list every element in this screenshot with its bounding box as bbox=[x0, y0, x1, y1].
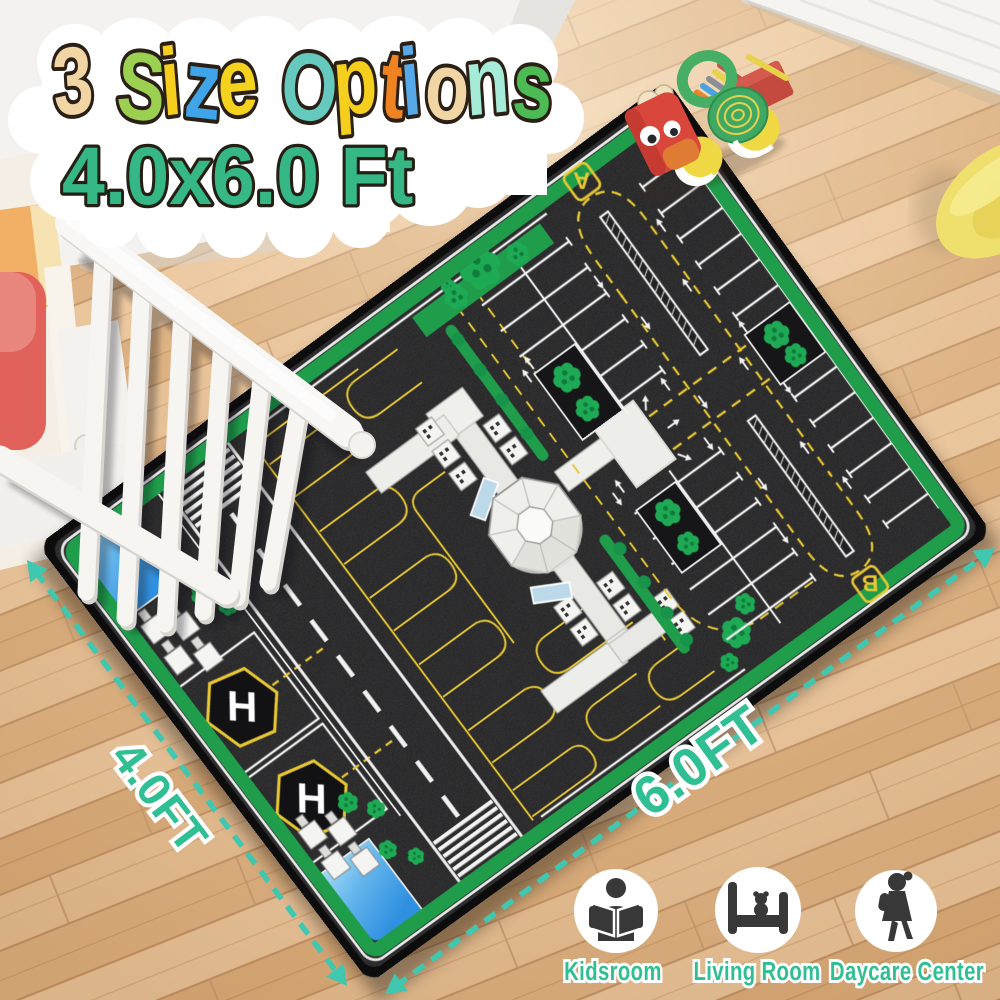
svg-text:3 Size Options: 3 Size Options bbox=[49, 24, 555, 144]
svg-text:4.0FT: 4.0FT bbox=[101, 731, 218, 862]
svg-text:6.0FT: 6.0FT bbox=[622, 694, 775, 828]
svg-text:Daycare Center: Daycare Center bbox=[830, 957, 984, 986]
svg-text:4.0x6.0 Ft: 4.0x6.0 Ft bbox=[62, 130, 413, 222]
svg-text:Kidsroom: Kidsroom bbox=[564, 957, 662, 986]
svg-text:Living Room: Living Room bbox=[694, 957, 821, 986]
